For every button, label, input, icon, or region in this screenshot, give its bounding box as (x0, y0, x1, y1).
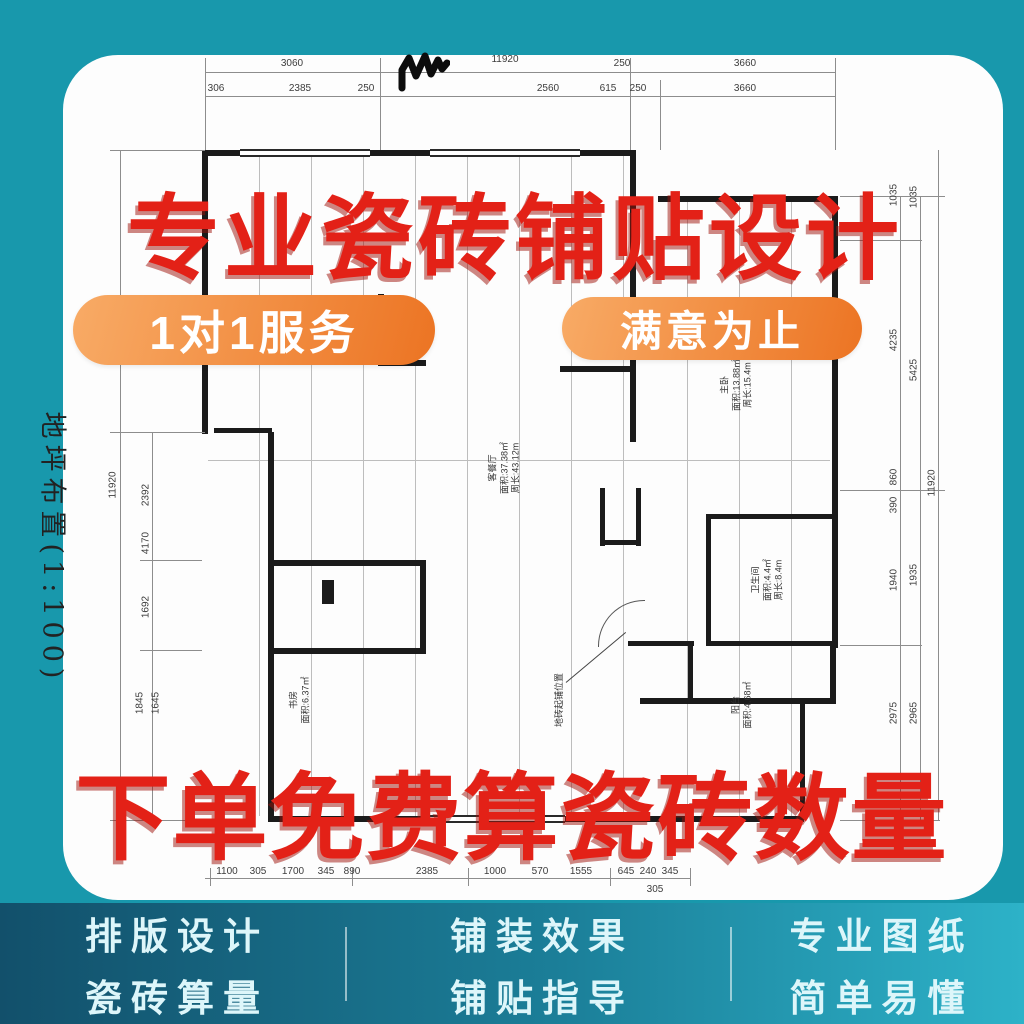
dimension-line (205, 96, 835, 97)
dimension-label: 3660 (734, 58, 756, 69)
window-symbol (430, 149, 580, 157)
footer-column-1: 排版设计 瓷砖算量 (0, 903, 345, 1024)
wall-segment (830, 645, 836, 704)
room-label-balcony: 阳台 面积:4.68㎡ (730, 681, 753, 728)
column-block (322, 580, 334, 604)
dimension-label: 4170 (141, 532, 152, 554)
brand-logo-icon (398, 50, 450, 101)
dimension-label: 1845 (135, 692, 146, 714)
dimension-label: 4235 (889, 329, 900, 351)
dimension-label: 390 (889, 497, 900, 514)
wall-segment (214, 428, 272, 433)
dimension-label: 306 (208, 83, 225, 94)
extension-line (140, 650, 202, 651)
footer-line: 专业图纸 (781, 906, 974, 960)
extension-line (205, 58, 206, 150)
product-poster: 3060 11920 250 3660 306 2385 250 2560 61… (0, 0, 1024, 1024)
dimension-label: 3660 (734, 83, 756, 94)
plan-scale-label: 地坪布置(1:100) (36, 412, 75, 685)
wall-segment (420, 560, 426, 654)
footer-column-2: 铺装效果 铺贴指导 (345, 903, 730, 1024)
dimension-label: 1645 (151, 692, 162, 714)
dimension-line (938, 150, 939, 820)
dimension-label: 615 (600, 83, 617, 94)
footer-divider (730, 927, 732, 1001)
dimension-label: 1940 (889, 569, 900, 591)
dimension-label: 305 (647, 884, 664, 895)
dimension-label: 11920 (927, 469, 938, 496)
footer-column-3: 专业图纸 简单易懂 (730, 903, 1024, 1024)
extension-line (140, 560, 202, 561)
wall-segment (600, 488, 605, 546)
extension-line (380, 58, 381, 150)
wall-segment (706, 641, 834, 646)
dimension-label: 2385 (289, 83, 311, 94)
wall-segment (688, 641, 693, 703)
dimension-label: 2975 (889, 702, 900, 724)
wall-segment (272, 560, 424, 566)
dimension-label: 250 (358, 83, 375, 94)
extension-line (840, 645, 922, 646)
room-label-master: 主卧 面积:13.88㎡ 周长:15.4m (719, 359, 754, 411)
room-label-living: 客餐厅 面积:37.38㎡ 周长:43.12m (487, 442, 522, 494)
wall-segment (636, 488, 641, 546)
dimension-label: 1035 (909, 186, 920, 208)
service-badge-right: 满意为止 (562, 297, 862, 360)
promo-title-bottom: 下单免费算瓷砖数量 (75, 742, 948, 879)
promo-title-top: 专业瓷砖铺贴设计 (127, 163, 903, 298)
extension-line (110, 150, 205, 151)
extension-line (110, 432, 205, 433)
dimension-label: 3060 (281, 58, 303, 69)
room-label-study: 书房 面积:6.37㎡ (288, 676, 311, 723)
dimension-line (120, 150, 121, 820)
feature-footer-bar: 排版设计 瓷砖算量 铺装效果 铺贴指导 专业图纸 简单易懂 (0, 903, 1024, 1024)
wall-segment (706, 514, 711, 646)
room-label-bath: 卫生间 面积:4.4㎡ 周长:8.4m (750, 559, 785, 601)
dimension-label: 5425 (909, 359, 920, 381)
extension-line (630, 58, 631, 150)
footer-line: 排版设计 (76, 906, 269, 960)
wall-segment (706, 514, 834, 519)
extension-line (835, 58, 836, 150)
dimension-label: 11920 (491, 54, 518, 65)
footer-line: 铺贴指导 (441, 968, 634, 1022)
window-symbol (240, 149, 370, 157)
dimension-line (920, 196, 921, 820)
dimension-label: 2560 (537, 83, 559, 94)
dimension-label: 2965 (909, 702, 920, 724)
dimension-label: 2392 (141, 484, 152, 506)
dimension-line (205, 72, 835, 73)
dimension-label: 860 (889, 469, 900, 486)
dimension-label: 250 (614, 58, 631, 69)
dimension-label: 1692 (141, 596, 152, 618)
dimension-label: 250 (630, 83, 647, 94)
extension-line (660, 80, 661, 150)
wall-segment (600, 540, 640, 545)
plan-note: 地砖起铺位置 (554, 673, 566, 727)
footer-line: 铺装效果 (441, 906, 634, 960)
footer-line: 瓷砖算量 (76, 968, 269, 1022)
dimension-label: 11920 (108, 471, 119, 498)
dimension-label: 1935 (909, 564, 920, 586)
footer-line: 简单易懂 (781, 968, 974, 1022)
wall-segment (560, 366, 636, 372)
wall-segment (272, 648, 424, 654)
service-badge-left: 1对1服务 (73, 295, 435, 365)
footer-divider (345, 927, 347, 1001)
